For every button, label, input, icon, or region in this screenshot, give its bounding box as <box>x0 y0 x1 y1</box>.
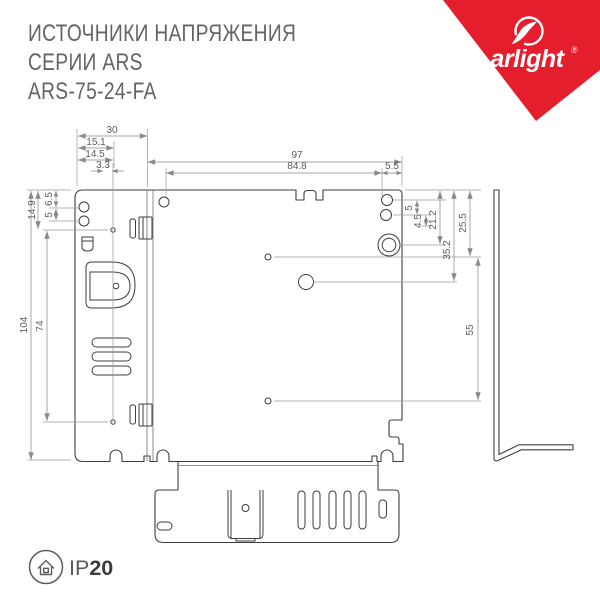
bushing-hole-outer <box>378 234 400 256</box>
vent-slot <box>344 491 351 529</box>
vent-slot <box>359 491 366 529</box>
front-view-outline <box>75 190 403 462</box>
screw-hole <box>265 398 271 404</box>
vent-slot-vertical <box>130 219 136 238</box>
extension-lines <box>27 129 481 460</box>
brand-name: arlight <box>491 45 566 73</box>
dim-label-104: 104 <box>19 316 30 333</box>
tab-hole <box>242 505 249 512</box>
vent-slot <box>92 366 131 375</box>
vent-slot <box>92 352 131 361</box>
screw-hole <box>265 254 271 260</box>
dim-label-3-3: 3.3 <box>96 160 110 171</box>
center-hole <box>299 275 314 290</box>
vent-slot <box>92 338 131 347</box>
vent-slot <box>379 500 387 518</box>
dim-label-97: 97 <box>291 150 303 161</box>
bushing-hole-inner <box>382 238 396 252</box>
dim-label-35-2: 35.2 <box>442 240 453 260</box>
vent-slot-vertical <box>139 217 152 239</box>
vent-slot <box>313 491 320 529</box>
dim-label-5-5: 5.5 <box>385 161 399 172</box>
ip-value: 20 <box>89 556 113 580</box>
bottom-view-outline <box>155 462 399 543</box>
vent-slot-vertical <box>130 405 136 424</box>
vent-slot <box>298 491 305 529</box>
mounting-hole <box>381 210 392 221</box>
dim-label-5-right: 5 <box>404 205 415 211</box>
page: ИСТОЧНИКИ НАПРЯЖЕНИЯ СЕРИИ ARS ARS-75-24… <box>0 0 600 600</box>
ip-rating-text: IP20 <box>69 556 113 580</box>
mounting-hole <box>79 216 89 226</box>
front-view <box>75 190 403 462</box>
dim-label-55: 55 <box>465 324 476 336</box>
dim-label-6-5: 6.5 <box>44 192 55 206</box>
dim-label-14-5: 14.5 <box>85 149 105 160</box>
connector-cutout-outer <box>86 262 135 308</box>
side-view <box>494 190 573 461</box>
ip-prefix: IP <box>69 556 89 580</box>
registered-mark: ® <box>571 45 578 55</box>
connector-cutout-inner <box>90 272 130 300</box>
terminal-tab <box>228 490 263 541</box>
dim-label-21-2: 21.2 <box>428 210 439 230</box>
connector-hole <box>113 283 119 289</box>
side-view-outline <box>494 190 573 461</box>
badge-circle <box>30 551 63 584</box>
vent-slot <box>329 491 336 529</box>
dim-label-15-1: 15.1 <box>86 137 106 148</box>
dimension-lines <box>31 136 478 460</box>
drawing-canvas: arlight ® <box>0 0 600 600</box>
bottom-view <box>155 462 399 543</box>
ip-rating-badge: IP20 <box>30 551 114 584</box>
latch-tab <box>82 237 93 251</box>
dim-label-30: 30 <box>106 125 118 136</box>
vent-slot-vertical <box>139 404 152 426</box>
dim-label-84-8: 84.8 <box>287 161 307 172</box>
mounting-hole <box>159 197 169 207</box>
dim-label-74: 74 <box>35 320 46 332</box>
dim-label-14-9: 14.9 <box>27 200 38 220</box>
brand-banner: arlight ® <box>443 0 600 121</box>
dim-label-4-5: 4.5 <box>413 214 424 228</box>
dim-label-25-5: 25.5 <box>458 213 469 233</box>
dim-label-5-left: 5 <box>44 212 55 218</box>
house-icon <box>38 561 54 575</box>
mounting-hole <box>382 195 393 206</box>
mounting-hole <box>79 202 89 212</box>
vent-slot-horizontal <box>157 522 172 530</box>
